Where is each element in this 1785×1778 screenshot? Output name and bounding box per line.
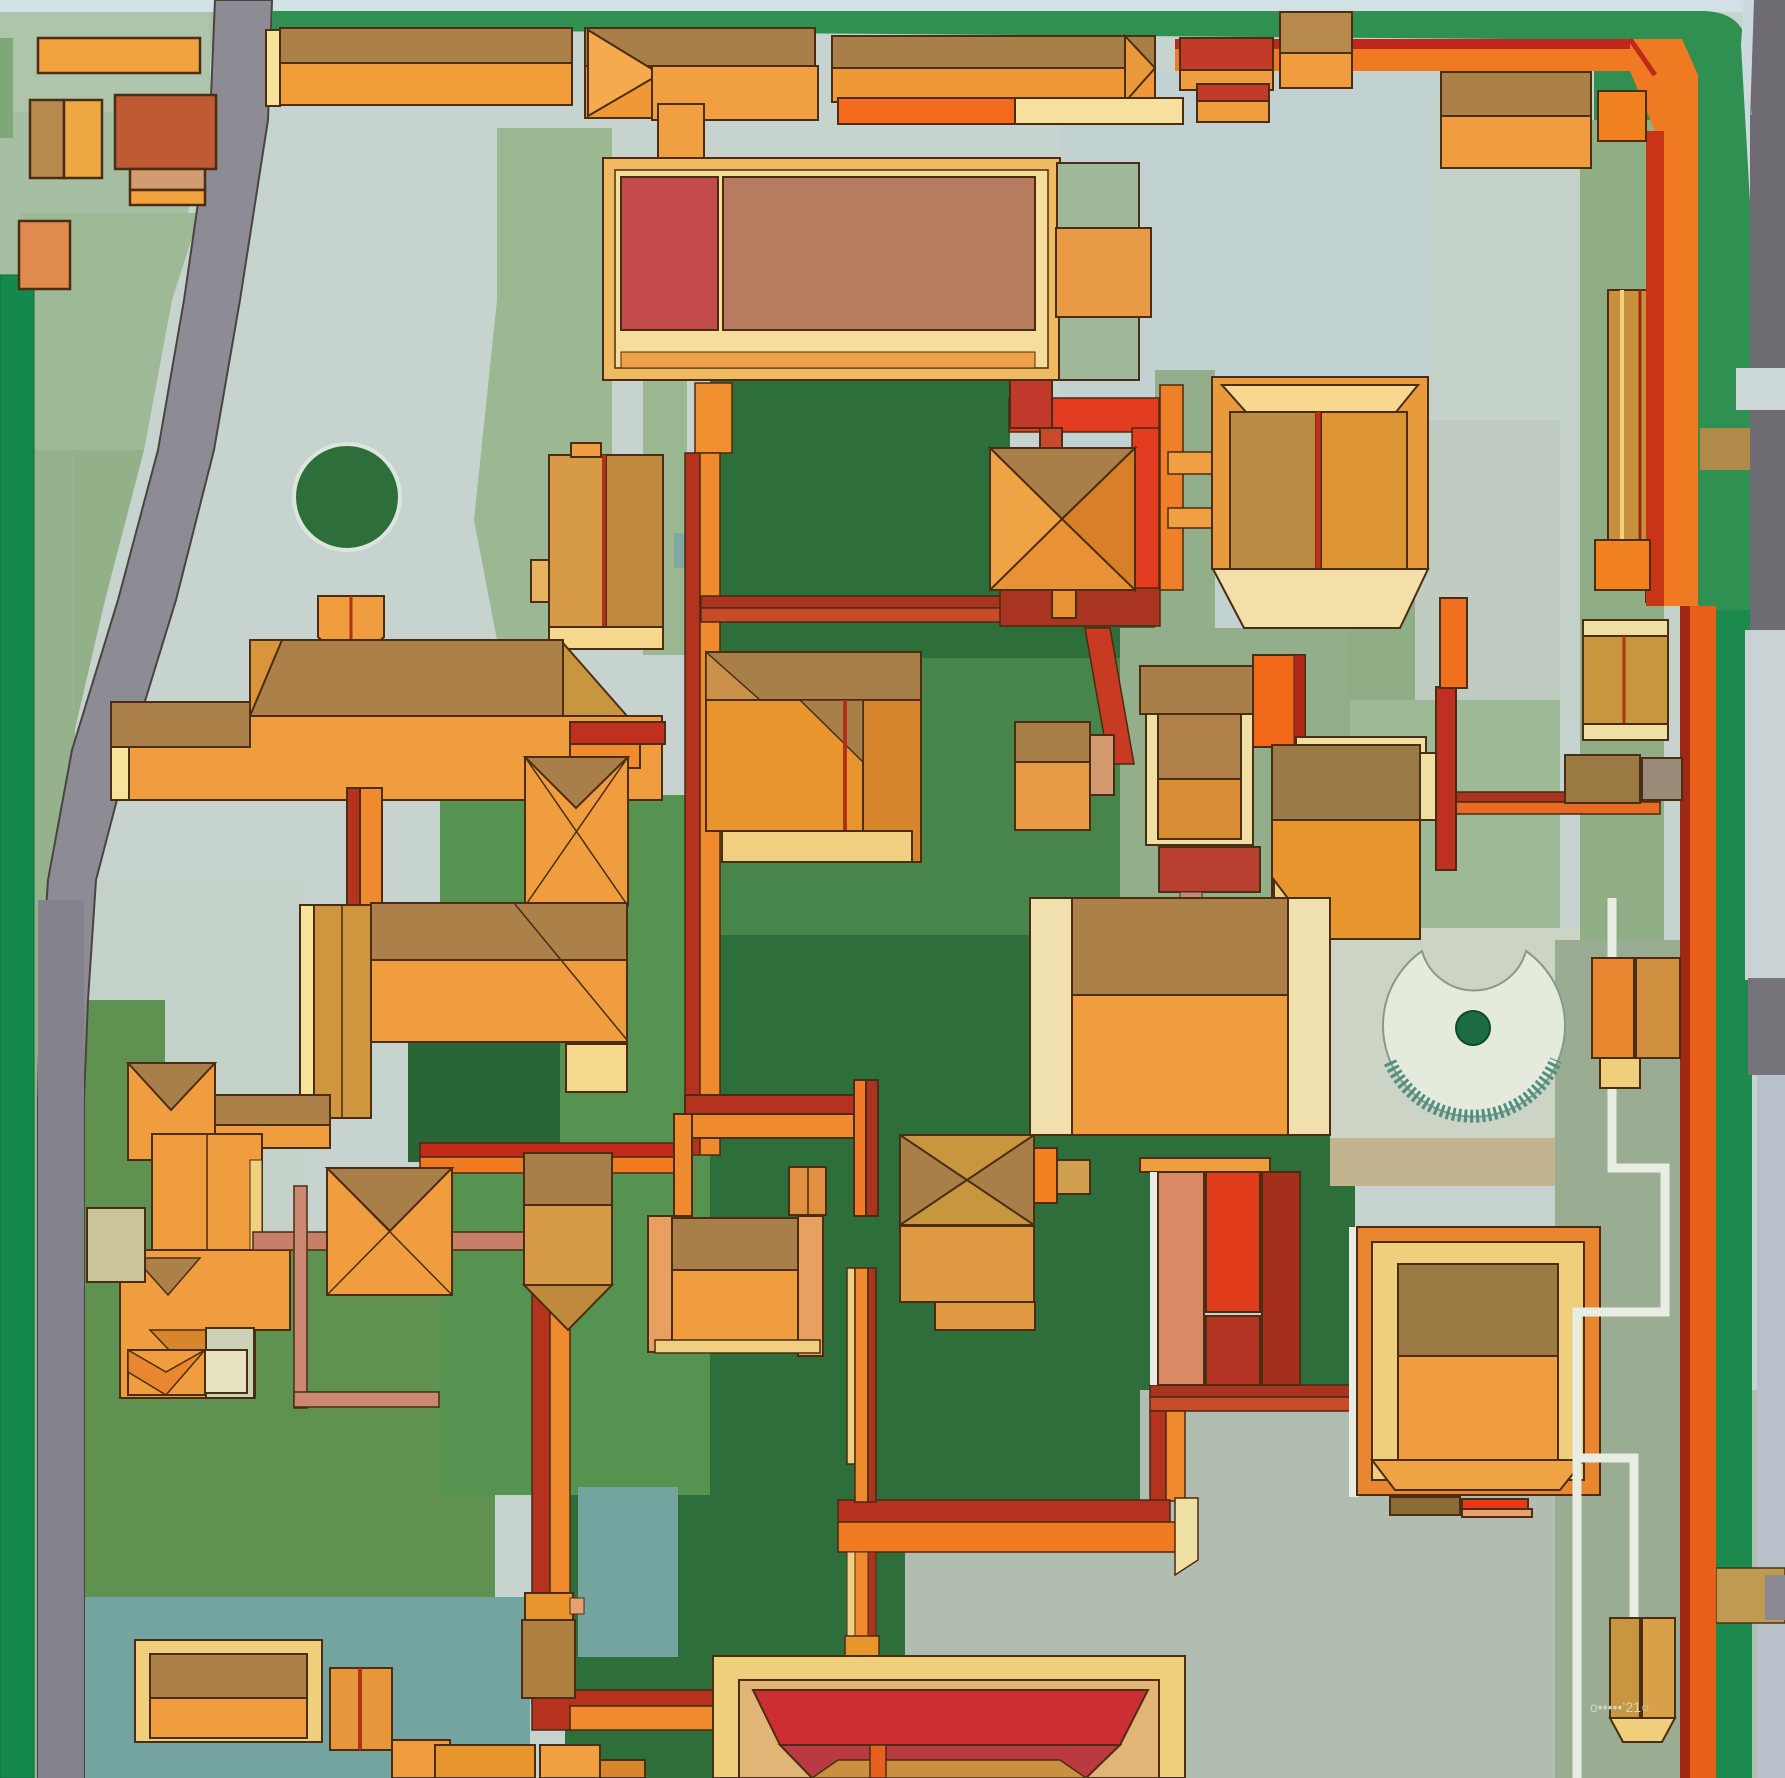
svg-text:o•••••’21○: o•••••’21○ — [1590, 1699, 1649, 1715]
